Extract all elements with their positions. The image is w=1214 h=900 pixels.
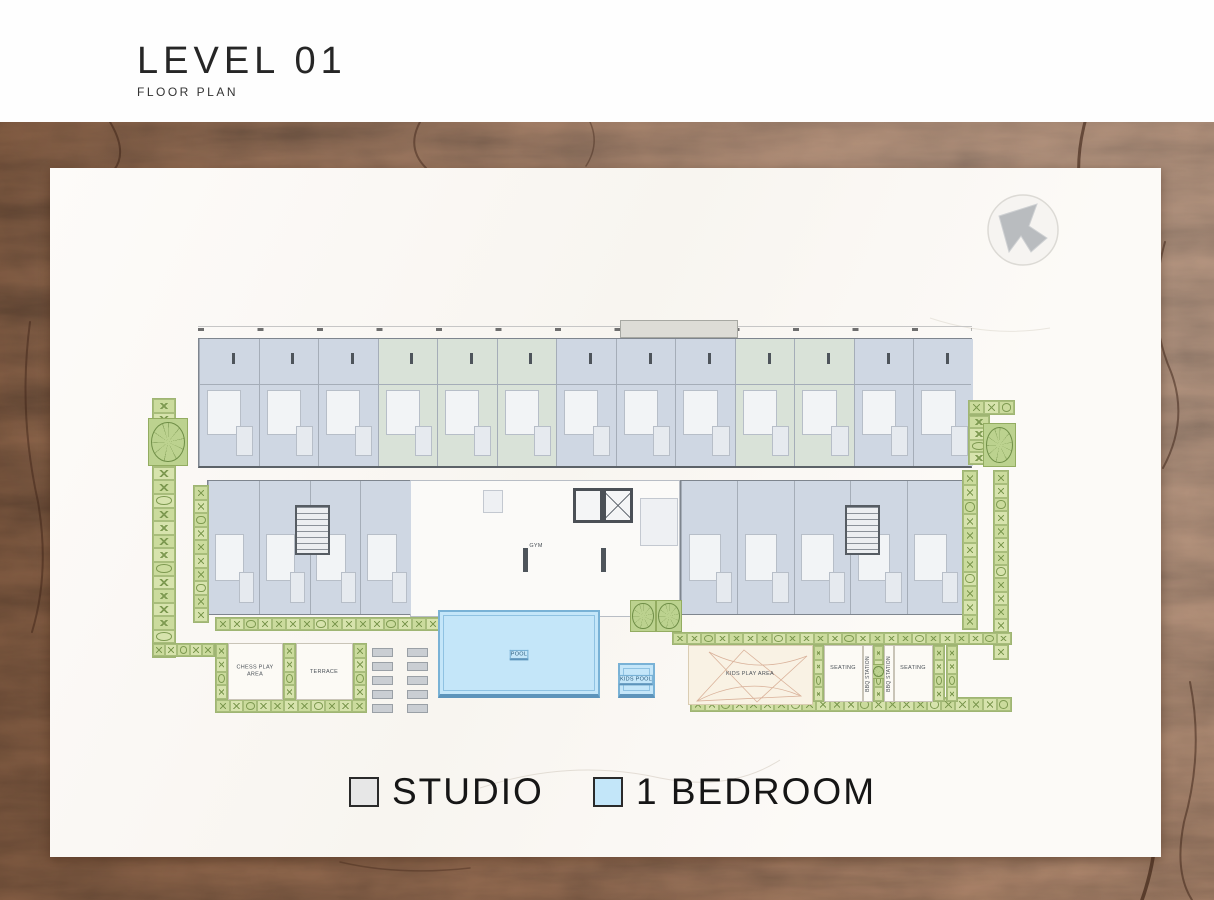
- planter-cell: [194, 581, 208, 595]
- page-title: LEVEL 01: [137, 42, 347, 82]
- planter-cell: [153, 644, 165, 656]
- planter-cell: [194, 500, 208, 514]
- planter-cell: [216, 685, 227, 699]
- planter-strip: [215, 699, 367, 713]
- sun-lounger: [372, 648, 393, 657]
- planter-cell: [257, 700, 271, 712]
- planter-cell: [994, 471, 1008, 484]
- planter-cell: [216, 672, 227, 686]
- plan-label-terrace: TERRACE: [310, 669, 338, 676]
- planter-cell: [412, 618, 426, 630]
- planter-cell: [244, 618, 258, 630]
- planter-cell: [701, 633, 715, 644]
- planter-cell: [757, 633, 771, 644]
- planter-cell: [342, 618, 356, 630]
- planter-cell: [314, 618, 328, 630]
- planter-cell: [284, 700, 298, 712]
- planter-strip: [152, 643, 215, 657]
- unit-studio: [199, 339, 259, 466]
- wall-tick: [470, 353, 473, 364]
- planter-cell: [828, 633, 842, 644]
- wall-tick: [232, 353, 235, 364]
- wall-tick: [589, 353, 592, 364]
- planter-cell: [870, 633, 884, 644]
- tree-icon: [658, 603, 679, 629]
- planter-cell: [926, 633, 940, 644]
- planter-cell: [994, 552, 1008, 565]
- tree-planter: [983, 423, 1016, 467]
- planter-cell: [963, 557, 977, 571]
- planter-cell: [153, 562, 175, 576]
- planter-cell: [153, 603, 175, 617]
- planter-cell: [963, 615, 977, 629]
- floor-plan-card: GYMPOOLKIDS POOLCHESS PLAY AREATERRACEKI…: [50, 168, 1161, 857]
- planter-cell: [284, 658, 295, 672]
- elevator-shaft: [573, 488, 603, 523]
- planter-cell: [999, 401, 1014, 414]
- planter-cell: [994, 511, 1008, 524]
- planter-strip: [933, 645, 945, 702]
- planter-strip: [968, 400, 1015, 415]
- tree-icon: [151, 422, 184, 463]
- sun-lounger: [407, 662, 428, 671]
- planter-cell: [947, 646, 957, 660]
- legend-label-1-bedroom: 1 BEDROOM: [636, 771, 876, 813]
- tree-planter: [148, 418, 188, 466]
- planter-cell: [994, 538, 1008, 551]
- planter-cell: [997, 633, 1011, 644]
- planter-cell: [384, 618, 398, 630]
- planter-cell: [153, 548, 175, 562]
- amenity-room: [640, 498, 678, 546]
- planter-strip: [283, 643, 296, 700]
- planter-cell: [963, 600, 977, 614]
- unit-1-bedroom: [437, 339, 497, 466]
- planter-cell: [352, 700, 366, 712]
- planter-cell: [284, 685, 295, 699]
- planter-cell: [216, 644, 227, 658]
- planter-cell: [947, 674, 957, 688]
- planter-cell: [311, 700, 325, 712]
- planter-cell: [715, 633, 729, 644]
- wall-tick: [410, 353, 413, 364]
- unit-studio: [616, 339, 676, 466]
- planter-cell: [994, 484, 1008, 497]
- planter-cell: [984, 401, 999, 414]
- plan-label-seating: SEATING: [830, 665, 856, 672]
- planter-cell: [194, 513, 208, 527]
- planter-cell: [772, 633, 786, 644]
- sun-lounger: [407, 690, 428, 699]
- planter-cell: [194, 527, 208, 541]
- unit-studio: [675, 339, 735, 466]
- planter-cell: [194, 608, 208, 622]
- planter-cell: [947, 687, 957, 701]
- planter-cell: [354, 644, 366, 658]
- sun-lounger: [372, 690, 393, 699]
- unit-1-bedroom: [497, 339, 557, 466]
- planter-cell: [300, 618, 314, 630]
- unit-studio: [208, 481, 259, 614]
- planter-cell: [842, 633, 856, 644]
- planter-cell: [729, 633, 743, 644]
- wall-tick: [946, 353, 949, 364]
- page-subtitle: FLOOR PLAN: [137, 85, 347, 99]
- planter-cell: [339, 700, 353, 712]
- wall-tick: [708, 353, 711, 364]
- planter-cell: [963, 500, 977, 514]
- planter-cell: [194, 554, 208, 568]
- planter-cell: [969, 401, 984, 414]
- planter-cell: [934, 646, 944, 660]
- unit-studio: [681, 481, 737, 614]
- planter-cell: [271, 700, 285, 712]
- planter-cell: [230, 618, 244, 630]
- planter-strip: [813, 645, 824, 702]
- planter-cell: [814, 646, 823, 660]
- wall-tick: [351, 353, 354, 364]
- seating-2: [894, 645, 933, 702]
- entrance-protrusion: [620, 320, 738, 338]
- planter-cell: [687, 633, 701, 644]
- planter-strip: [215, 643, 228, 700]
- sun-lounger: [372, 662, 393, 671]
- planter-cell: [354, 658, 366, 672]
- wall-tick: [529, 353, 532, 364]
- tree-icon: [873, 666, 884, 677]
- unit-studio: [907, 481, 963, 614]
- structural-column: [601, 548, 606, 572]
- planter-strip: [193, 485, 209, 623]
- plan-label-bbq-station: BBQ STATION: [886, 656, 892, 692]
- planter-cell: [814, 660, 823, 674]
- planter-cell: [153, 630, 175, 644]
- planter-cell: [354, 672, 366, 686]
- planter-strip: [962, 470, 978, 630]
- sun-lounger: [372, 704, 393, 713]
- unit-studio: [259, 339, 319, 466]
- planter-strip: [672, 632, 1012, 645]
- planter-cell: [898, 633, 912, 644]
- planter-cell: [814, 674, 823, 688]
- planter-cell: [272, 618, 286, 630]
- planter-cell: [153, 589, 175, 603]
- planter-cell: [884, 633, 898, 644]
- planter-strip: [215, 617, 455, 631]
- wall-tick: [827, 353, 830, 364]
- planter-cell: [994, 619, 1008, 632]
- planter-cell: [994, 565, 1008, 578]
- amenity-room: [483, 490, 503, 513]
- planter-cell: [194, 568, 208, 582]
- legend-swatch-studio: [349, 777, 379, 807]
- stairwell: [845, 505, 880, 555]
- planter-cell: [912, 633, 926, 644]
- planter-cell: [286, 618, 300, 630]
- planter-cell: [153, 535, 175, 549]
- planter-cell: [216, 658, 227, 672]
- building-wing: [680, 480, 962, 615]
- planter-cell: [814, 633, 828, 644]
- sun-lounger: [407, 676, 428, 685]
- page-header: LEVEL 01 FLOOR PLAN: [137, 42, 347, 99]
- planter-cell: [398, 618, 412, 630]
- planter-cell: [994, 645, 1008, 658]
- plan-label-gym: GYM: [529, 543, 542, 550]
- elevator-shaft: [603, 488, 633, 523]
- planter-cell: [284, 644, 295, 658]
- unit-1-bedroom: [794, 339, 854, 466]
- planter-cell: [955, 633, 969, 644]
- planter-cell: [194, 540, 208, 554]
- unit-studio: [318, 339, 378, 466]
- unit-studio: [737, 481, 793, 614]
- planter-cell: [934, 660, 944, 674]
- planter-cell: [370, 618, 384, 630]
- wall-tick: [291, 353, 294, 364]
- structural-column: [523, 548, 528, 572]
- balcony-line: [199, 384, 971, 385]
- planter-cell: [243, 700, 257, 712]
- unit-1-bedroom: [735, 339, 795, 466]
- planter-cell: [190, 644, 202, 656]
- seating-1: [824, 645, 863, 702]
- planter-cell: [194, 595, 208, 609]
- planter-cell: [800, 633, 814, 644]
- wall-tick: [887, 353, 890, 364]
- planter-cell: [814, 687, 823, 701]
- planter-cell: [153, 508, 175, 522]
- planter-cell: [983, 633, 997, 644]
- dimension-line: [198, 326, 972, 332]
- planter-cell: [994, 578, 1008, 591]
- planter-cell: [994, 592, 1008, 605]
- planter-cell: [284, 672, 295, 686]
- planter-cell: [963, 572, 977, 586]
- planter-cell: [356, 618, 370, 630]
- planter-cell: [963, 485, 977, 499]
- planter-cell: [153, 521, 175, 535]
- unit-studio: [794, 481, 850, 614]
- tree-planter: [630, 600, 656, 632]
- planter-cell: [963, 543, 977, 557]
- planter-cell: [216, 700, 230, 712]
- plan-label-seating: SEATING: [900, 665, 926, 672]
- sun-lounger: [407, 648, 428, 657]
- planter-cell: [963, 586, 977, 600]
- planter-cell: [874, 646, 883, 660]
- planter-cell: [963, 514, 977, 528]
- planter-cell: [354, 685, 366, 699]
- planter-cell: [202, 644, 214, 656]
- unit-studio: [360, 481, 411, 614]
- plan-label-kids-pool: KIDS POOL: [619, 675, 653, 685]
- planter-cell: [856, 633, 870, 644]
- planter-cell: [153, 616, 175, 630]
- planter-cell: [934, 687, 944, 701]
- unit-studio: [854, 339, 914, 466]
- planter-cell: [673, 633, 687, 644]
- planter-cell: [325, 700, 339, 712]
- planter-cell: [983, 698, 997, 711]
- planter-cell: [165, 644, 177, 656]
- planter-cell: [994, 605, 1008, 618]
- legend-item-studio: STUDIO: [349, 771, 544, 813]
- planter-cell: [328, 618, 342, 630]
- tree-icon: [632, 603, 653, 629]
- planter-strip: [946, 645, 958, 702]
- planter-cell: [994, 498, 1008, 511]
- stairwell: [295, 505, 330, 555]
- planter-cell: [969, 633, 983, 644]
- planter-cell: [258, 618, 272, 630]
- legend-label-studio: STUDIO: [392, 771, 544, 813]
- tree-icon: [986, 427, 1013, 464]
- sun-lounger: [372, 676, 393, 685]
- planter-cell: [153, 399, 175, 413]
- planter-cell: [743, 633, 757, 644]
- planter-cell: [947, 660, 957, 674]
- planter-cell: [177, 644, 189, 656]
- plan-label-pool: POOL: [510, 650, 529, 660]
- wall-tick: [768, 353, 771, 364]
- planter-cell: [963, 528, 977, 542]
- tree-planter: [656, 600, 682, 632]
- planter-cell: [994, 525, 1008, 538]
- planter-cell: [153, 494, 175, 508]
- plan-label-bbq-station: BBQ STATION: [865, 656, 871, 692]
- planter-cell: [194, 486, 208, 500]
- planter-cell: [969, 698, 983, 711]
- plan-label-chess-play-area: CHESS PLAY AREA: [237, 664, 274, 678]
- wall-tick: [649, 353, 652, 364]
- planter-cell: [874, 687, 883, 701]
- planter-cell: [153, 480, 175, 494]
- planter-cell: [216, 618, 230, 630]
- planter-cell: [963, 471, 977, 485]
- planter-cell: [997, 698, 1011, 711]
- floor-plan: GYMPOOLKIDS POOLCHESS PLAY AREATERRACEKI…: [50, 168, 1161, 857]
- planter-cell: [153, 576, 175, 590]
- planter-cell: [153, 467, 175, 481]
- planter-strip: [353, 643, 367, 700]
- unit-1-bedroom: [378, 339, 438, 466]
- planter-cell: [298, 700, 312, 712]
- unit-studio: [913, 339, 973, 466]
- planter-cell: [230, 700, 244, 712]
- planter-cell: [940, 633, 954, 644]
- building-top-bar: [198, 338, 972, 468]
- legend-swatch-1-bedroom: [593, 777, 623, 807]
- legend-item-1-bedroom: 1 BEDROOM: [593, 771, 876, 813]
- planter-cell: [786, 633, 800, 644]
- unit-studio: [556, 339, 616, 466]
- planter-cell: [934, 674, 944, 688]
- plan-label-kids-play-area: KIDS PLAY AREA: [726, 671, 774, 678]
- sun-lounger: [407, 704, 428, 713]
